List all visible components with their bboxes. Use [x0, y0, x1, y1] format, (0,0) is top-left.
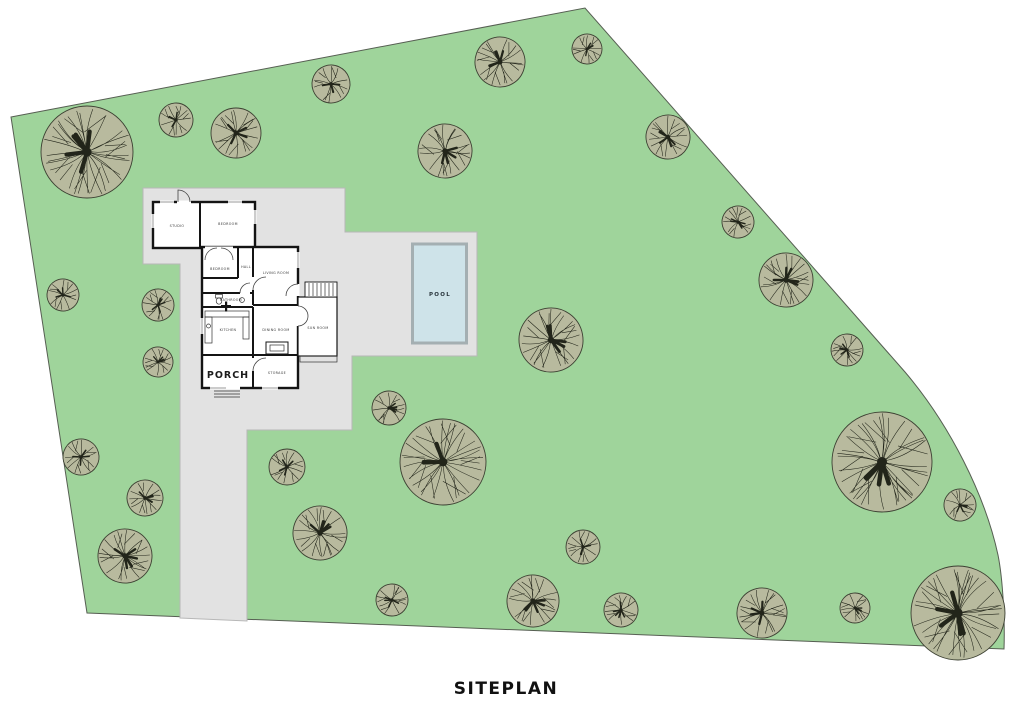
tree — [41, 106, 133, 198]
room-label-bedroom2: BEDROOM — [210, 267, 230, 271]
pool-area: POOL — [413, 244, 467, 343]
room-label-bathroom: BATHROOM — [220, 298, 242, 302]
room-label-dining: DINING ROOM — [262, 328, 289, 332]
siteplan-title: SITEPLAN — [454, 679, 558, 699]
house-top-wing — [153, 202, 255, 248]
room-label-porch: PORCH — [207, 370, 249, 381]
room-label-storage: STORAGE — [268, 371, 286, 375]
tree — [269, 449, 305, 485]
tree — [566, 530, 600, 564]
siteplan-drawing: POOL — [0, 0, 1010, 704]
property-boundary — [11, 8, 1004, 649]
room-label-bedroom1: BEDROOM — [218, 222, 238, 226]
room-label-hall: HALL — [241, 265, 251, 269]
room-label-studio: STUDIO — [170, 224, 185, 228]
pool-label: POOL — [429, 292, 451, 298]
room-label-kitchen: KITCHEN — [220, 328, 237, 332]
tree — [211, 108, 261, 158]
fireplace — [266, 342, 288, 354]
room-label-living: LIVING ROOM — [263, 271, 289, 275]
room-label-sunroom: SUN ROOM — [307, 326, 328, 330]
siteplan-page: POOL — [0, 0, 1010, 704]
